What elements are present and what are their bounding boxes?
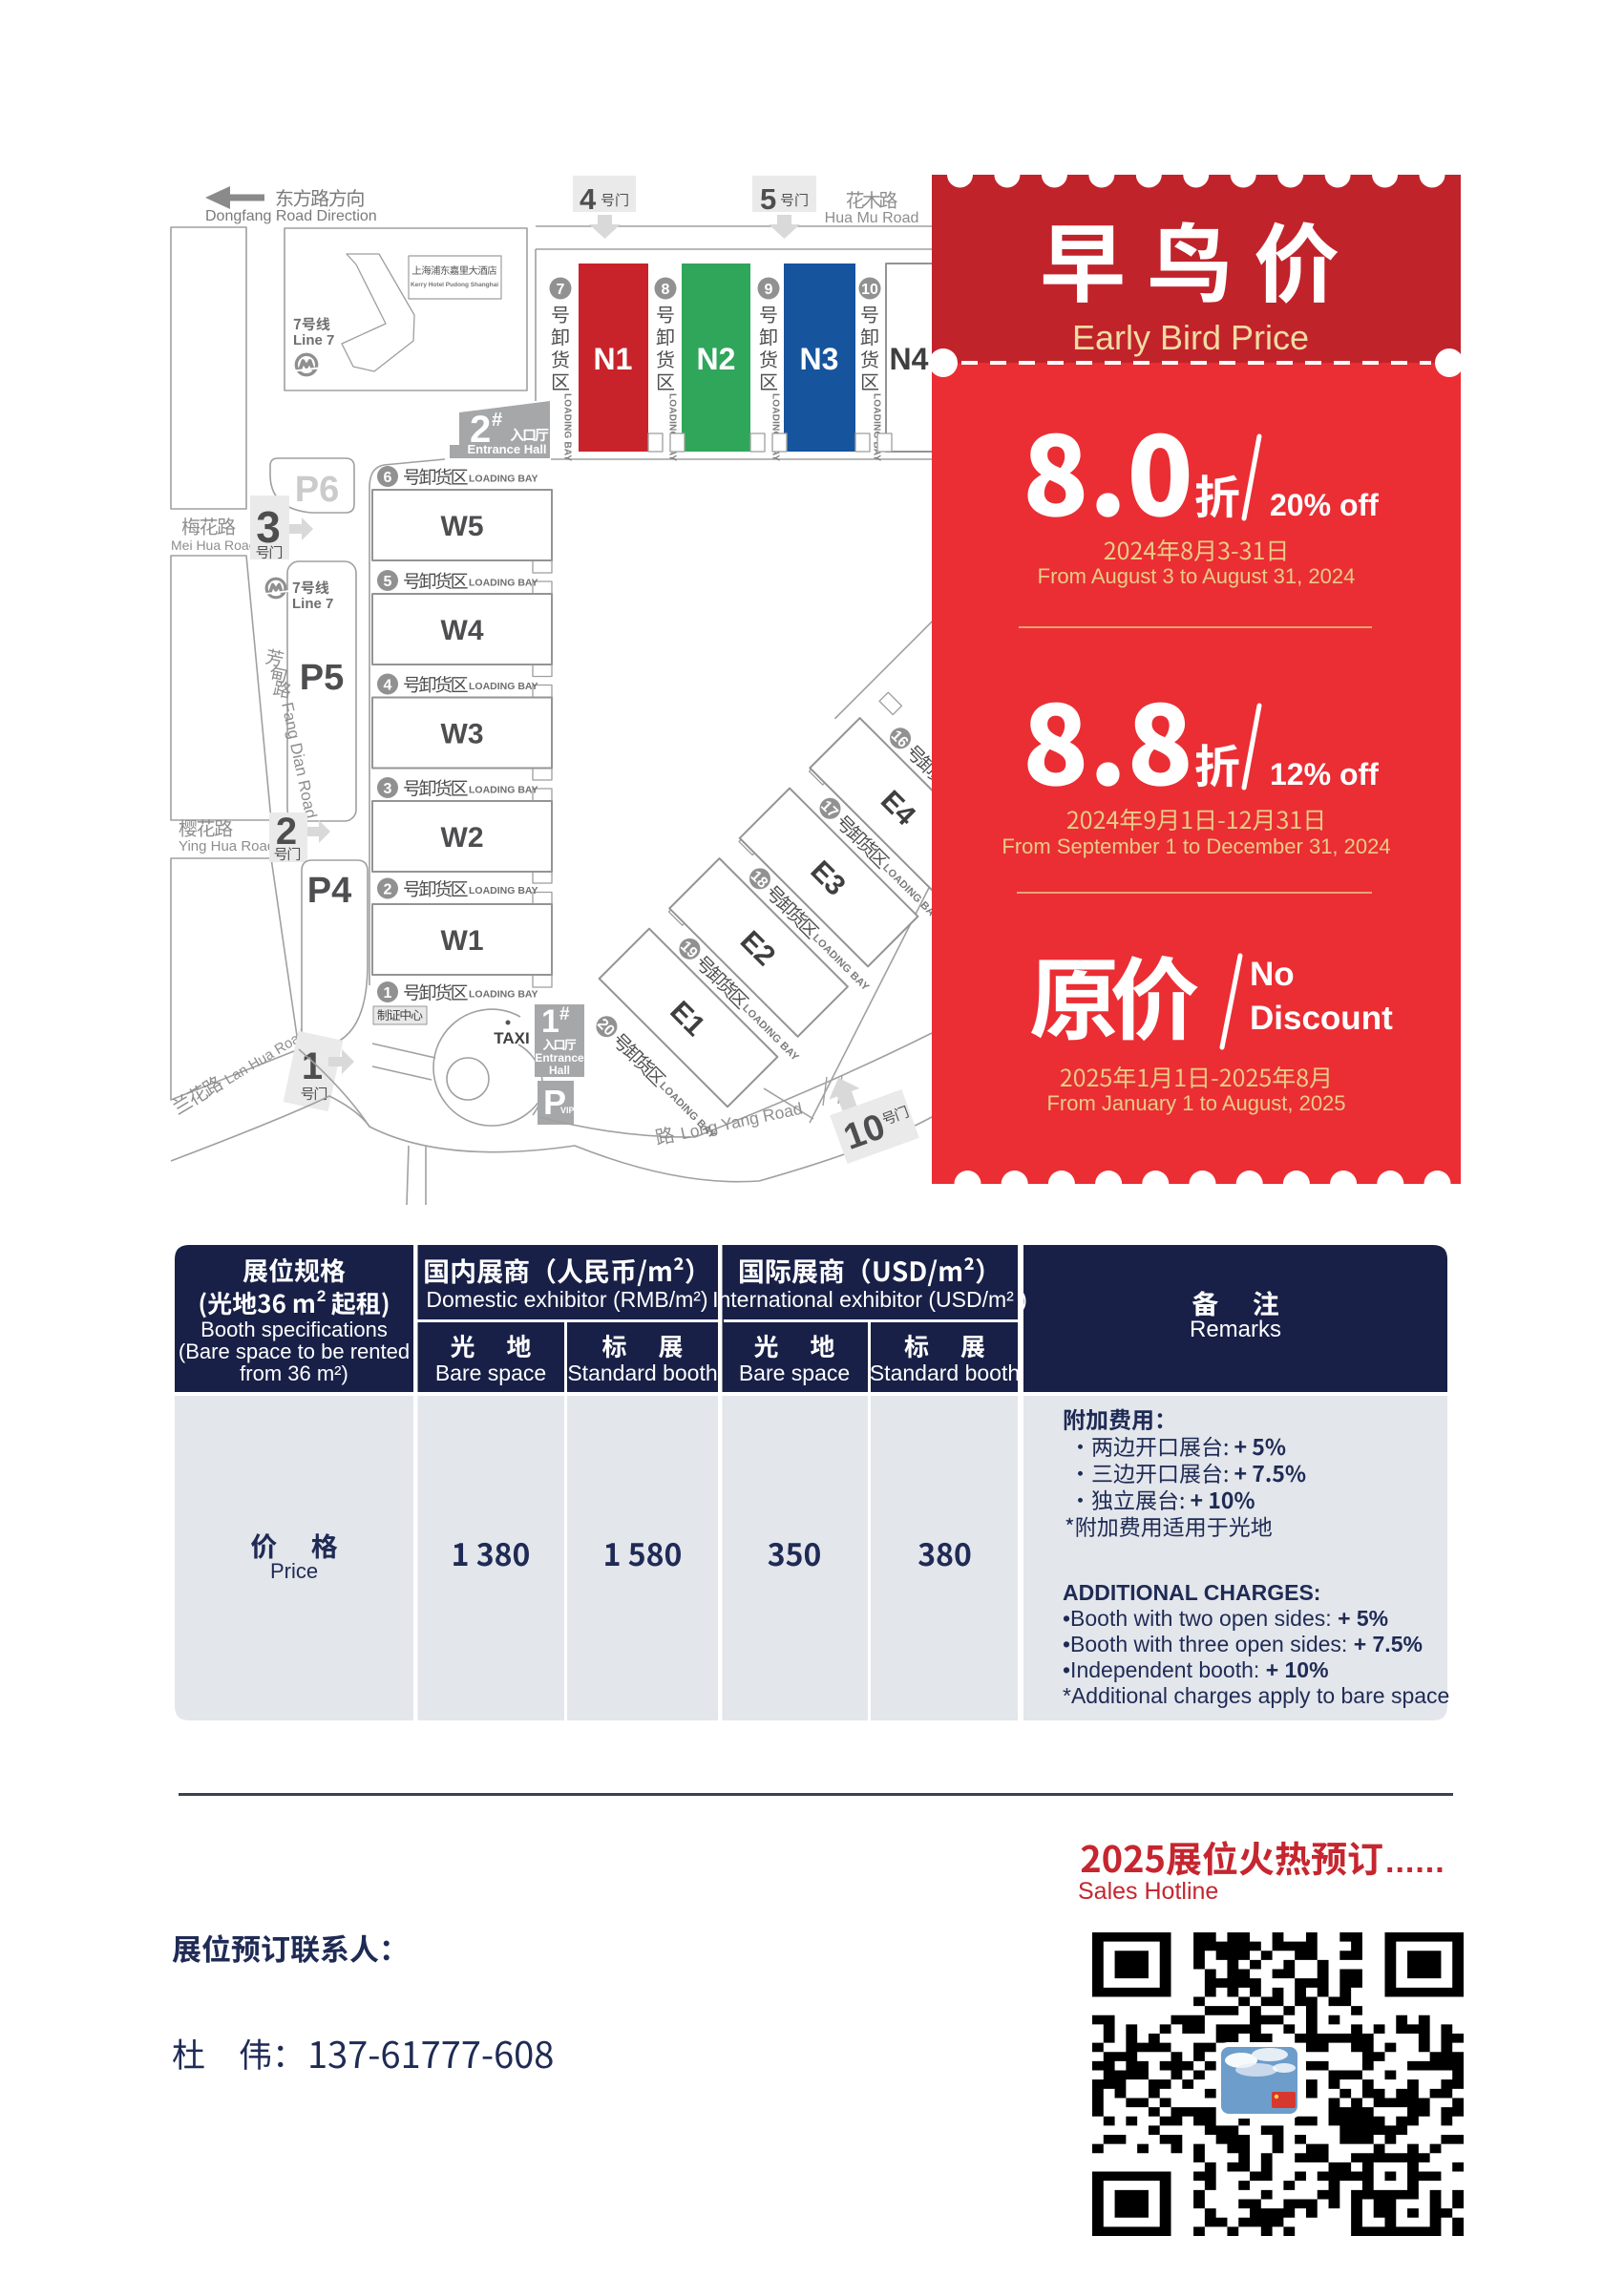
svg-text:......: ...... [1385,1844,1445,1880]
svg-text:Line 7: Line 7 [293,332,334,348]
svg-text:Hua Mu Road: Hua Mu Road [825,210,919,226]
svg-text:VIP: VIP [560,1106,575,1115]
svg-text:•Booth with three open sides:: •Booth with three open sides: + 7.5% [1063,1632,1423,1656]
svg-text:No: No [1250,956,1295,993]
svg-text:10: 10 [861,282,878,298]
svg-text:Discount: Discount [1250,1000,1393,1037]
svg-text:P: P [543,1083,566,1122]
svg-text:LOADING BAY: LOADING BAY [469,474,538,485]
svg-text:2: 2 [317,1287,326,1305]
svg-text:Standard booth: Standard booth [870,1360,1020,1385]
svg-text:LOADING BAY: LOADING BAY [469,785,538,796]
svg-text:Ying Hua Road: Ying Hua Road [179,838,275,854]
svg-text:N4: N4 [890,342,929,376]
svg-text:1: 1 [302,1045,323,1087]
svg-text:LOADING BAY: LOADING BAY [469,989,538,1001]
svg-text:#: # [559,1004,570,1024]
svg-text:LOADING BAY: LOADING BAY [469,681,538,692]
svg-text:ADDITIONAL CHARGES:: ADDITIONAL CHARGES: [1063,1580,1320,1605]
svg-text:3: 3 [384,781,392,797]
svg-text:from 36 m²): from 36 m²) [240,1361,348,1385]
svg-text:7: 7 [557,282,565,298]
svg-text:Domestic exhibitor (RMB/m²): Domestic exhibitor (RMB/m²) [426,1287,707,1312]
svg-text:From September 1 to December 3: From September 1 to December 31, 2024 [1002,834,1390,858]
svg-text:P5: P5 [300,658,344,698]
svg-text:Entrance: Entrance [535,1051,584,1065]
svg-text:6: 6 [384,470,392,486]
svg-text:4: 4 [580,182,597,216]
svg-text:•Booth with two open sides: +: •Booth with two open sides: + 5% [1063,1606,1388,1631]
svg-text:LOADING BAY: LOADING BAY [562,393,573,461]
svg-text:International exhibitor (USD/m: International exhibitor (USD/m² ) [712,1287,1027,1312]
svg-text:Line 7: Line 7 [292,596,333,612]
svg-text:Hall: Hall [549,1064,570,1077]
svg-text:Kerry Hotel Pudong Shanghai: Kerry Hotel Pudong Shanghai [411,282,498,288]
svg-text:W5: W5 [441,511,484,542]
svg-text:Booth specifications: Booth specifications [200,1318,388,1341]
svg-text:8: 8 [662,282,670,298]
svg-text:2: 2 [276,811,297,853]
svg-text:LOADING BAY: LOADING BAY [469,578,538,589]
svg-text:Mei Hua Road: Mei Hua Road [171,538,257,553]
svg-text:LOADING BAY: LOADING BAY [469,885,538,896]
svg-text:From August 3 to August 31, 20: From August 3 to August 31, 2024 [1038,564,1356,588]
svg-text:Entrance Hall: Entrance Hall [467,442,546,456]
svg-text:Sales Hotline: Sales Hotline [1078,1878,1218,1905]
svg-text:9: 9 [765,282,773,298]
svg-text:*Additional charges apply to b: *Additional charges apply to bare space [1063,1683,1449,1708]
svg-text:1: 1 [384,985,392,1002]
svg-text:N3: N3 [800,342,839,376]
svg-text:From January 1 to August, 2025: From January 1 to August, 2025 [1046,1091,1345,1115]
svg-text:Bare space: Bare space [739,1360,850,1385]
svg-text:Price: Price [270,1559,318,1583]
svg-text:W4: W4 [441,615,484,646]
svg-text:•Independent booth: + 10%: •Independent booth: + 10% [1063,1657,1329,1682]
svg-text:Dongfang Road Direction: Dongfang Road Direction [205,208,377,224]
svg-text:Early Bird Price: Early Bird Price [1072,318,1309,357]
svg-text:(Bare space to be rented: (Bare space to be rented [179,1339,410,1363]
svg-text:W3: W3 [441,719,484,750]
svg-text:12% off: 12% off [1270,757,1379,791]
svg-text:5: 5 [384,574,392,590]
svg-text:3: 3 [256,502,281,552]
svg-text:N2: N2 [697,342,736,376]
svg-text:20% off: 20% off [1270,488,1379,522]
svg-text:P4: P4 [307,871,351,911]
svg-text:Standard booth: Standard booth [567,1360,717,1385]
svg-text:#: # [492,410,502,431]
svg-text:TAXI: TAXI [494,1029,529,1047]
svg-text:Remarks: Remarks [1190,1317,1281,1342]
svg-text:1: 1 [541,1003,559,1040]
svg-text:W1: W1 [441,925,484,957]
svg-text:W2: W2 [441,822,484,854]
svg-text:N1: N1 [594,342,633,376]
svg-text:Bare space: Bare space [435,1360,546,1385]
svg-text:5: 5 [760,182,776,216]
svg-text:P6: P6 [295,470,339,510]
svg-text:4: 4 [384,678,392,694]
svg-text:2: 2 [384,882,392,898]
